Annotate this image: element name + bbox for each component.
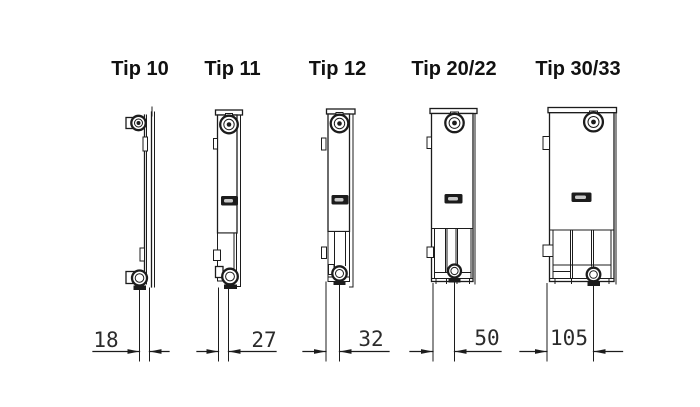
tip-10-depth-value: 18 (93, 328, 118, 352)
tip-10-label: Tip 10 (111, 58, 168, 80)
wall-bracket-icon (543, 245, 553, 257)
valve-top-icon (584, 111, 603, 131)
radiator-types-diagram: Tip 10 (0, 0, 700, 407)
tip-20-22-label: Tip 20/22 (411, 58, 496, 80)
wall-bracket-icon (322, 138, 327, 150)
tip-20-22-depth-value: 50 (474, 326, 499, 350)
tip-11-depth-value: 27 (251, 328, 276, 352)
brand-plate-icon (221, 196, 238, 206)
wall-bracket-icon (214, 139, 218, 150)
valve-bottom-icon (448, 265, 461, 283)
tip-12-depth-value: 32 (358, 327, 383, 351)
wall-bracket-icon (214, 250, 221, 261)
wall-bracket-icon (427, 137, 432, 149)
brand-plate-icon (332, 195, 349, 205)
brand-plate-icon (445, 194, 463, 204)
wall-bracket-icon (427, 247, 434, 258)
wall-bracket-icon (140, 248, 145, 261)
tip-12-label: Tip 12 (309, 58, 366, 80)
wall-bracket-icon (543, 137, 550, 150)
tip-11-label: Tip 11 (204, 58, 260, 80)
brand-plate-icon (572, 193, 592, 203)
top-cap (548, 108, 617, 113)
diagram-canvas: Tip 10 (0, 0, 700, 407)
wall-bracket-icon (143, 137, 148, 151)
wall-bracket-icon (322, 247, 327, 259)
tip-30-33-depth-value: 105 (550, 326, 588, 350)
tip-30-33-label: Tip 30/33 (535, 58, 620, 80)
valve-bottom-icon (587, 268, 601, 286)
valve-top-icon (445, 112, 463, 132)
valve-top-icon (126, 116, 146, 130)
